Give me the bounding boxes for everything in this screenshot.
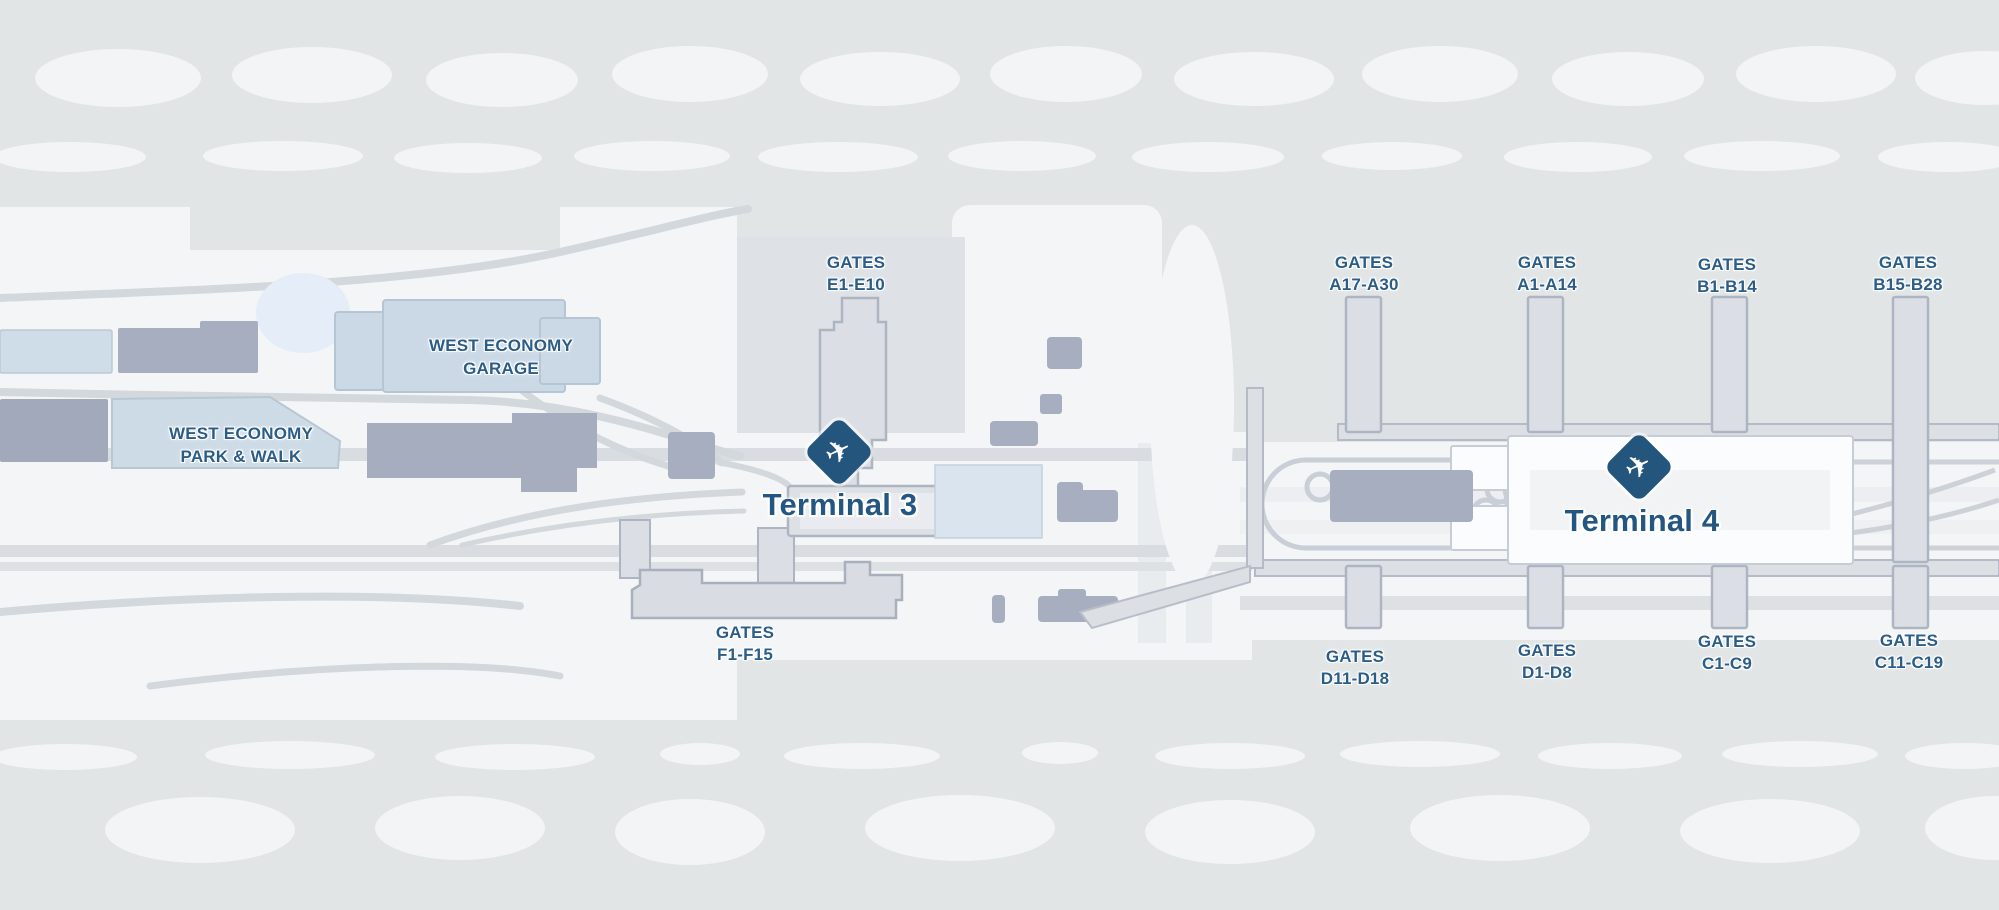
gates-a1-a14-label[interactable]: GATES A1-A14 xyxy=(1517,252,1577,296)
terminal3-label[interactable]: Terminal 3 xyxy=(763,487,918,523)
label-line: GATES xyxy=(1697,254,1757,276)
terminal3-connector-center xyxy=(758,528,794,590)
west-economy-garage-label[interactable]: WEST ECONOMY GARAGE xyxy=(429,334,573,380)
gates-f1-f15-label[interactable]: GATES F1-F15 xyxy=(716,622,774,666)
label-line: GATES xyxy=(1698,631,1756,653)
gates-e1-e10-label[interactable]: GATES E1-E10 xyxy=(827,252,885,296)
west-gray-building-2 xyxy=(0,399,108,462)
white-oval-island xyxy=(1150,225,1234,585)
west-economy-park-walk-label[interactable]: WEST ECONOMY PARK & WALK xyxy=(169,422,313,468)
label-line: GARAGE xyxy=(429,357,573,380)
label-line: D1-D8 xyxy=(1518,662,1576,684)
gates-d1-d8-label[interactable]: GATES D1-D8 xyxy=(1518,640,1576,684)
label-line: GATES xyxy=(1875,630,1944,652)
label-line: GATES xyxy=(827,252,885,274)
gates-c1-c9-label[interactable]: GATES C1-C9 xyxy=(1698,631,1756,675)
terminal4-west-corridor xyxy=(1247,388,1263,568)
airplane-takeoff-icon: ✈ xyxy=(1621,447,1658,486)
gates-b1-b14-label[interactable]: GATES B1-B14 xyxy=(1697,254,1757,298)
west-building-gray xyxy=(118,328,258,373)
label-line: E1-E10 xyxy=(827,274,885,296)
label-line: C11-C19 xyxy=(1875,652,1944,674)
label-line: F1-F15 xyxy=(716,644,774,666)
label-line: GATES xyxy=(1873,252,1942,274)
label-line: GATES xyxy=(1517,252,1577,274)
gates-b15-b28-label[interactable]: GATES B15-B28 xyxy=(1873,252,1942,296)
west-building-lightblue xyxy=(0,330,112,373)
label-line: GATES xyxy=(1329,252,1398,274)
terminal4-label[interactable]: Terminal 4 xyxy=(1565,503,1720,539)
label-line: GATES xyxy=(1321,646,1390,668)
terminal4-garage xyxy=(1330,470,1473,522)
label-line: B15-B28 xyxy=(1873,274,1942,296)
terminal3-lightblue-building xyxy=(935,465,1042,538)
label-line: GATES xyxy=(1518,640,1576,662)
label-line: A17-A30 xyxy=(1329,274,1398,296)
label-line: WEST ECONOMY xyxy=(169,422,313,445)
gates-d11-d18-label[interactable]: GATES D11-D18 xyxy=(1321,646,1390,690)
label-line: B1-B14 xyxy=(1697,276,1757,298)
label-line: GATES xyxy=(716,622,774,644)
airport-map[interactable]: WEST ECONOMY GARAGE WEST ECONOMY PARK & … xyxy=(0,0,1999,910)
label-line: C1-C9 xyxy=(1698,653,1756,675)
gates-a17-a30-label[interactable]: GATES A17-A30 xyxy=(1329,252,1398,296)
label-line: D11-D18 xyxy=(1321,668,1390,690)
gates-c11-c19-label[interactable]: GATES C11-C19 xyxy=(1875,630,1944,674)
airplane-takeoff-icon: ✈ xyxy=(821,432,858,471)
label-line: PARK & WALK xyxy=(169,445,313,468)
label-line: WEST ECONOMY xyxy=(429,334,573,357)
label-line: A1-A14 xyxy=(1517,274,1577,296)
